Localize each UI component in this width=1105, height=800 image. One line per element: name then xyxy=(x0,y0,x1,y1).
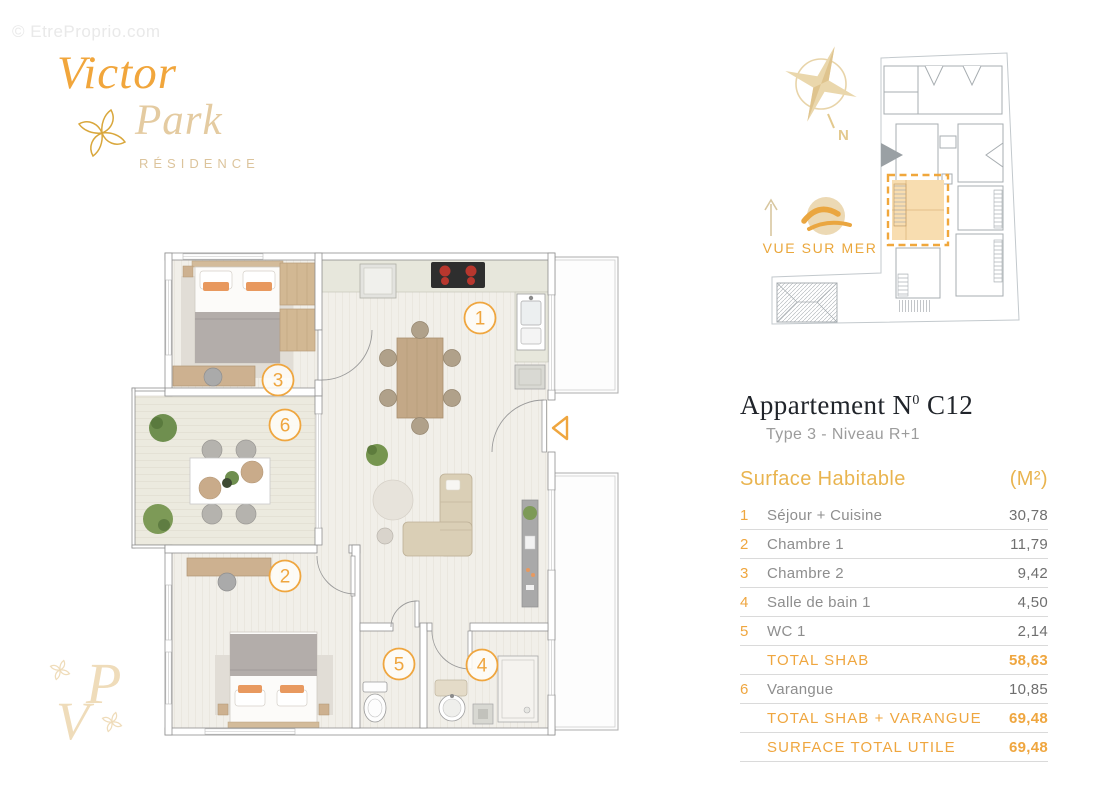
apartment-number: C12 xyxy=(927,390,973,420)
surface-table-title: Surface Habitable xyxy=(740,468,906,491)
room-marker-3: 3 xyxy=(273,371,284,392)
brand-tagline: RÉSIDENCE xyxy=(139,156,260,171)
monogram-p: P xyxy=(86,650,121,717)
table-row: 4 Salle de bain 1 4,50 xyxy=(740,588,1048,617)
room-marker-6: 6 xyxy=(280,416,291,437)
apartment-panel: Appartement N0 C12 Type 3 - Niveau R+1 S… xyxy=(740,390,1048,762)
table-row: 1 Séjour + Cuisine 30,78 xyxy=(740,501,1048,530)
table-row-total-shab-varangue: TOTAL SHAB + VARANGUE 69,48 xyxy=(740,704,1048,733)
balcony-bottom-right xyxy=(552,473,618,730)
site-plan xyxy=(760,44,1030,336)
table-row: 5 WC 1 2,14 xyxy=(740,617,1048,646)
watermark: © EtreProprio.com xyxy=(12,22,161,42)
table-row: 3 Chambre 2 9,42 xyxy=(740,559,1048,588)
floor-plan: 1 2 3 4 5 6 xyxy=(115,240,675,760)
apartment-title-sup: 0 xyxy=(912,393,919,408)
vp-monogram: V P xyxy=(48,652,148,752)
brand-name-bottom: Park xyxy=(135,96,223,145)
site-highlight xyxy=(888,175,948,245)
surface-table-unit: (M²) xyxy=(1010,468,1048,491)
page: © EtreProprio.com Victor Park RÉSIDENCE … xyxy=(0,0,1105,800)
table-row-total-shab: TOTAL SHAB 58,63 xyxy=(740,646,1048,675)
table-row-surface-total: SURFACE TOTAL UTILE 69,48 xyxy=(740,733,1048,762)
pinwheel-ornament-icon xyxy=(100,710,124,734)
room-marker-5: 5 xyxy=(394,655,405,676)
apartment-title: Appartement N0 C12 xyxy=(740,390,1048,421)
apartment-title-prefix: Appartement N xyxy=(740,390,912,420)
brand-name-top: Victor xyxy=(57,46,177,100)
surface-table: 1 Séjour + Cuisine 30,78 2 Chambre 1 11,… xyxy=(740,501,1048,762)
entrance-arrow-icon xyxy=(553,417,567,439)
surface-table-header: Surface Habitable (M²) xyxy=(740,468,1048,491)
table-row: 2 Chambre 1 11,79 xyxy=(740,530,1048,559)
pinwheel-ornament-icon xyxy=(73,104,131,162)
table-row: 6 Varangue 10,85 xyxy=(740,675,1048,704)
monogram-v: V xyxy=(56,690,89,752)
pinwheel-ornament-icon xyxy=(48,658,72,682)
room-marker-2: 2 xyxy=(280,567,291,588)
apartment-subtitle: Type 3 - Niveau R+1 xyxy=(766,426,1048,444)
room-marker-4: 4 xyxy=(477,656,488,677)
room-marker-1: 1 xyxy=(475,309,486,330)
brand-logo: Victor Park RÉSIDENCE xyxy=(55,52,285,182)
balcony-top-right xyxy=(552,257,618,393)
